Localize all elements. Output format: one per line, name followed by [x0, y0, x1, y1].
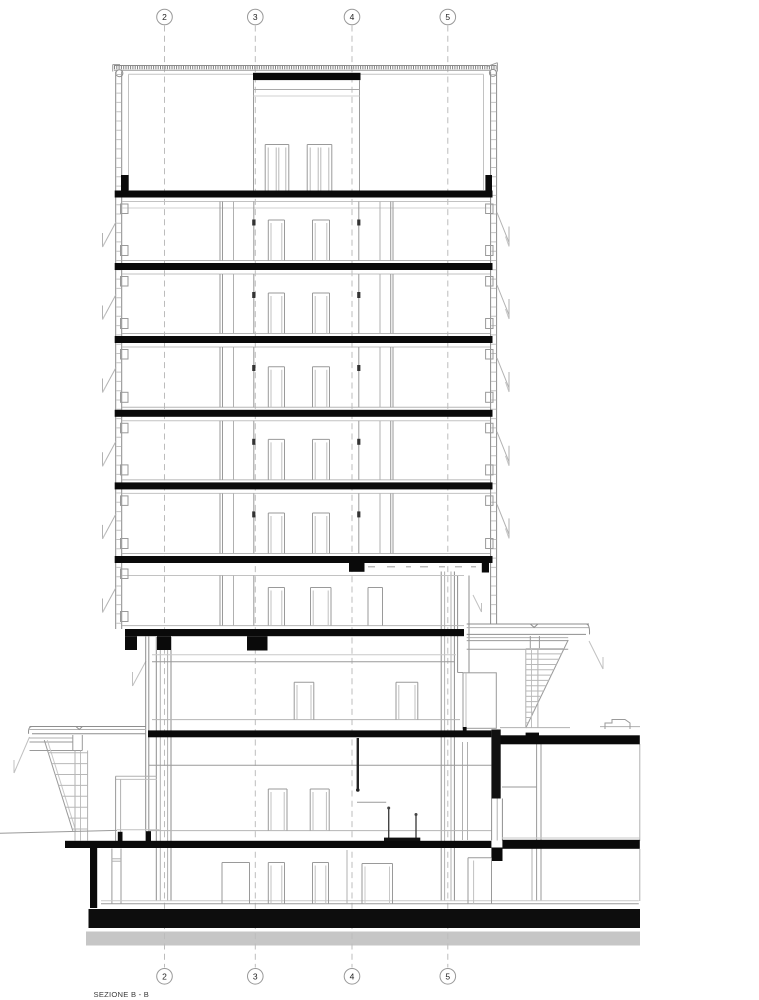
svg-text:4: 4 — [350, 971, 355, 981]
svg-text:4: 4 — [350, 12, 355, 22]
svg-text:5: 5 — [445, 12, 450, 22]
svg-text:2: 2 — [162, 12, 167, 22]
svg-text:SEZIONE B - B: SEZIONE B - B — [94, 990, 150, 999]
svg-text:3: 3 — [253, 12, 258, 22]
svg-text:5: 5 — [445, 971, 450, 981]
svg-text:3: 3 — [253, 971, 258, 981]
svg-text:2: 2 — [162, 971, 167, 981]
